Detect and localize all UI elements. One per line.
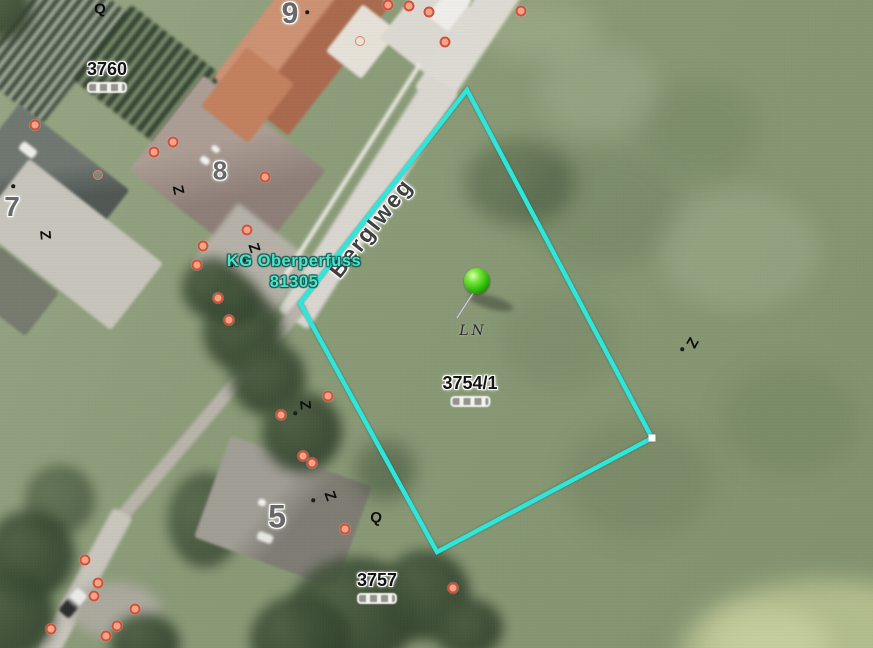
reference-dot <box>11 184 15 188</box>
boundary-point <box>323 391 334 402</box>
house-number: 5 <box>268 499 286 536</box>
map-pin[interactable] <box>450 265 510 325</box>
cadastral-region-label: KG Oberperfuss 81305 <box>227 251 361 293</box>
boundary-point <box>213 293 224 304</box>
boundary-point <box>89 591 100 602</box>
boundary-point <box>404 1 415 12</box>
tree-blob <box>433 598 503 648</box>
cadastre-symbol: Z <box>36 230 54 241</box>
grass-shade <box>25 465 95 535</box>
cadastre-symbol: Z <box>296 400 314 411</box>
grass-texture-blob <box>565 420 715 540</box>
parcel-number: 3757 <box>357 570 397 591</box>
cadastre-symbol: Q <box>94 1 106 18</box>
boundary-point <box>130 604 141 615</box>
boundary-point <box>440 37 451 48</box>
boundary-point <box>260 172 271 183</box>
boundary-point <box>30 120 41 131</box>
boundary-point <box>93 578 104 589</box>
land-use-label: LN <box>459 323 487 339</box>
boundary-point <box>198 241 209 252</box>
map-viewport[interactable]: Berglweg KG Oberperfuss 81305 LN 3760 37… <box>0 0 873 648</box>
parcel-area-strip <box>357 593 397 604</box>
boundary-point <box>516 6 527 17</box>
boundary-point <box>112 621 123 632</box>
reference-dot <box>680 347 684 351</box>
parcel-number: 3754/1 <box>442 373 497 394</box>
boundary-point <box>80 555 91 566</box>
house-number: 8 <box>213 156 227 187</box>
reference-dot <box>311 498 315 502</box>
parcel-label: 3754/1 <box>442 373 497 407</box>
grass-texture-blob <box>720 365 860 475</box>
reference-dot <box>305 10 309 14</box>
boundary-point <box>383 0 394 11</box>
boundary-point <box>101 631 112 642</box>
boundary-point <box>276 410 287 421</box>
vertex-marker[interactable] <box>649 435 656 442</box>
boundary-point <box>448 583 459 594</box>
parcel-number: 3760 <box>87 59 127 80</box>
boundary-point <box>424 7 435 18</box>
house-number: 7 <box>4 191 20 223</box>
cadastre-symbol: Q <box>369 509 383 528</box>
boundary-point <box>242 225 253 236</box>
boundary-point <box>340 524 351 535</box>
kg-name: KG Oberperfuss <box>227 251 361 272</box>
boundary-point <box>149 147 160 158</box>
parcel-label: 3757 <box>357 570 397 604</box>
boundary-point <box>307 458 318 469</box>
boundary-point <box>168 137 179 148</box>
parcel-area-strip <box>87 82 127 93</box>
grass-texture-blob <box>520 150 680 270</box>
reference-dot <box>293 411 297 415</box>
open-boundary-point <box>355 36 365 46</box>
parcel-area-strip <box>450 396 490 407</box>
boundary-point <box>192 260 203 271</box>
grass-texture-blob <box>480 0 600 60</box>
open-boundary-point <box>93 170 103 180</box>
pin-head <box>464 268 490 294</box>
kg-number: 81305 <box>227 272 361 293</box>
parcel-label: 3760 <box>87 59 127 93</box>
boundary-point <box>46 624 57 635</box>
boundary-point <box>224 315 235 326</box>
grass-texture-blob <box>660 190 820 310</box>
house-number: 9 <box>282 0 299 31</box>
